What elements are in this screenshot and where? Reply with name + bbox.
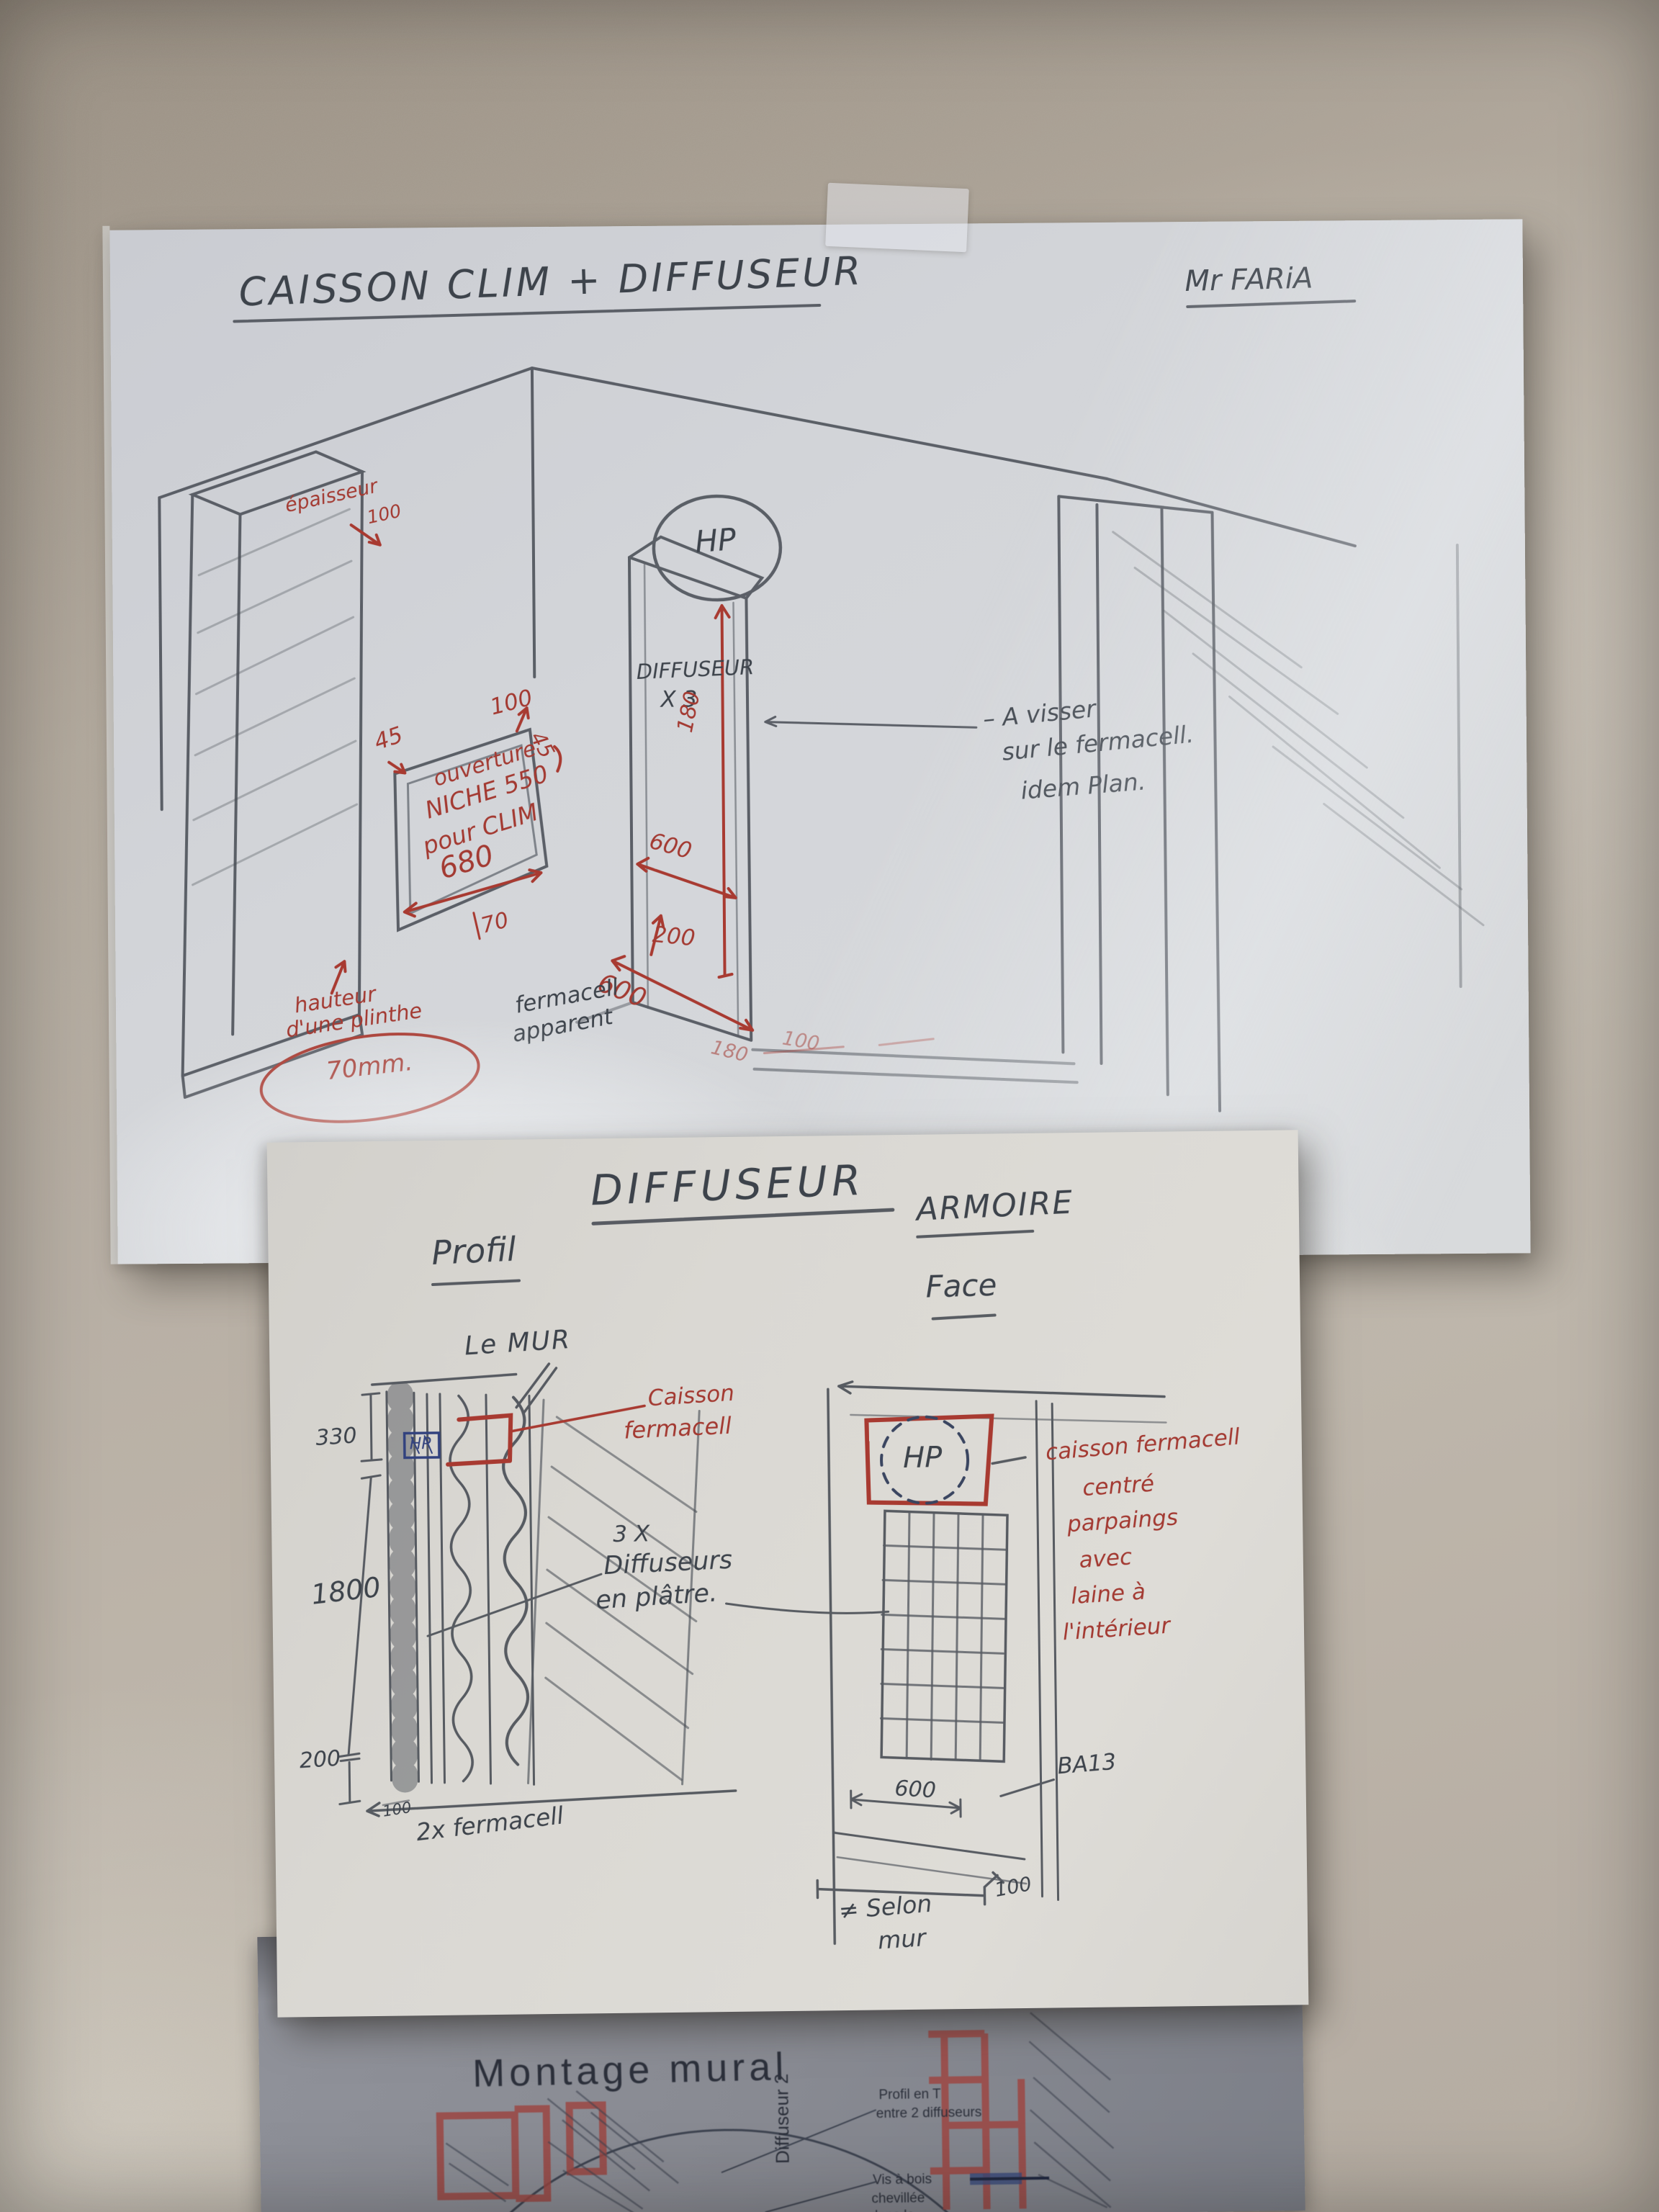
vis-label-line2: chevillée: [871, 2191, 925, 2206]
adhesive-tape: [825, 183, 969, 252]
dim-200-profile: 200: [299, 1748, 341, 1773]
sheet-caisson-clim: CAISSON CLIM + DIFFUSEUR Mr FARiA épaiss…: [109, 219, 1530, 1264]
diffuseur-label: DIFFUSEUR: [636, 656, 755, 683]
dim-600-face: 600: [894, 1777, 937, 1802]
le-mur-label: Le MUR: [464, 1326, 572, 1360]
sketch-profil-face: [267, 1130, 1309, 2017]
hp-face-label: HP: [903, 1442, 943, 1473]
red-note-line4: avec: [1079, 1545, 1133, 1572]
view-face-label: Face: [925, 1269, 997, 1303]
red-note-line5: laine à: [1070, 1581, 1146, 1609]
dim-200: 200: [652, 923, 696, 950]
blue-joint: [970, 2172, 1049, 2185]
dim-330: 330: [315, 1424, 357, 1449]
red-pen-strokes: [252, 521, 935, 1133]
sheet-diffuseur-armoire: DIFFUSEUR ARMOIRE Profil Face Le MUR 330…: [267, 1130, 1309, 2017]
montage-mural-title: Montage mural: [472, 2046, 788, 2095]
red-note-line2: centré: [1082, 1473, 1155, 1501]
profil-t-label-line1: Profil en T: [878, 2087, 941, 2103]
ba13-label: BA13: [1056, 1750, 1117, 1779]
selon-mur-line2: mur: [877, 1925, 927, 1954]
leader-lines: [721, 2110, 878, 2212]
sheet2-title-word1: DIFFUSEUR: [590, 1159, 866, 1213]
diffuseurs-label-line1: 3 X: [613, 1522, 649, 1546]
view-profil-label: Profil: [431, 1231, 516, 1270]
diffuseurs-label-line2: Diffuseurs: [603, 1547, 733, 1580]
profil-t-label-line2: entre 2 diffuseurs: [876, 2105, 982, 2121]
sheet2-title-word2: ARMOIRE: [916, 1186, 1075, 1226]
dim-100-small: 100: [382, 1799, 413, 1820]
vis-label-line3: dans le: [871, 2208, 915, 2212]
hp-speaker-label: HP: [694, 523, 737, 558]
pencil-hatching: [189, 500, 1483, 935]
photo-scene: CAISSON CLIM + DIFFUSEUR Mr FARiA épaiss…: [0, 0, 1659, 2212]
vis-label-line1: Vis à bois: [873, 2172, 932, 2188]
caisson-label-line2: fermacell: [623, 1414, 732, 1444]
hp-small-label: HP: [410, 1436, 431, 1452]
diffuseur2-rotated-label: Diffuseur 2: [772, 2049, 793, 2164]
sketch-perspective: [109, 219, 1530, 1264]
caisson-label-line1: Caisson: [647, 1382, 735, 1411]
client-name: Mr FARiA: [1184, 264, 1313, 297]
